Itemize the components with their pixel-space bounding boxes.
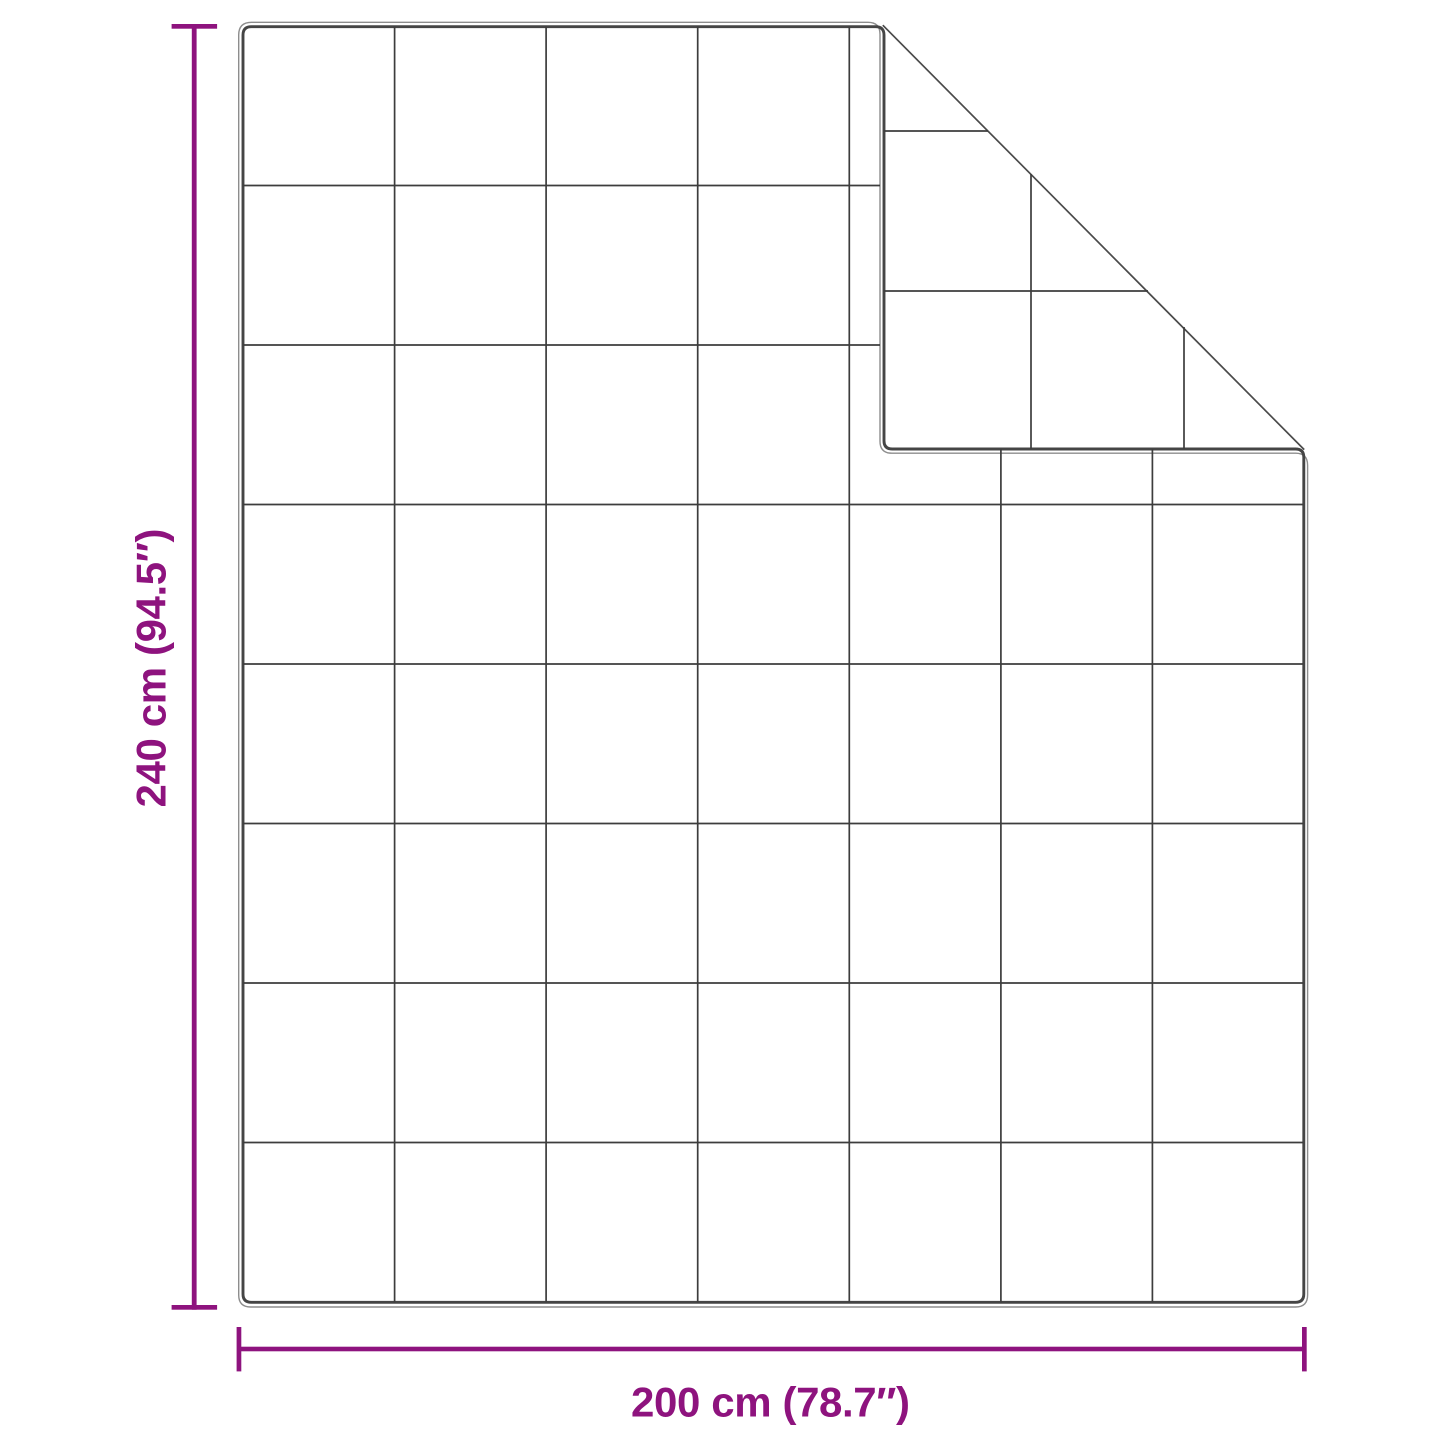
svg-text:240 cm (94.5″): 240 cm (94.5″) [128,529,175,808]
svg-text:200 cm (78.7″): 200 cm (78.7″) [631,1379,910,1426]
